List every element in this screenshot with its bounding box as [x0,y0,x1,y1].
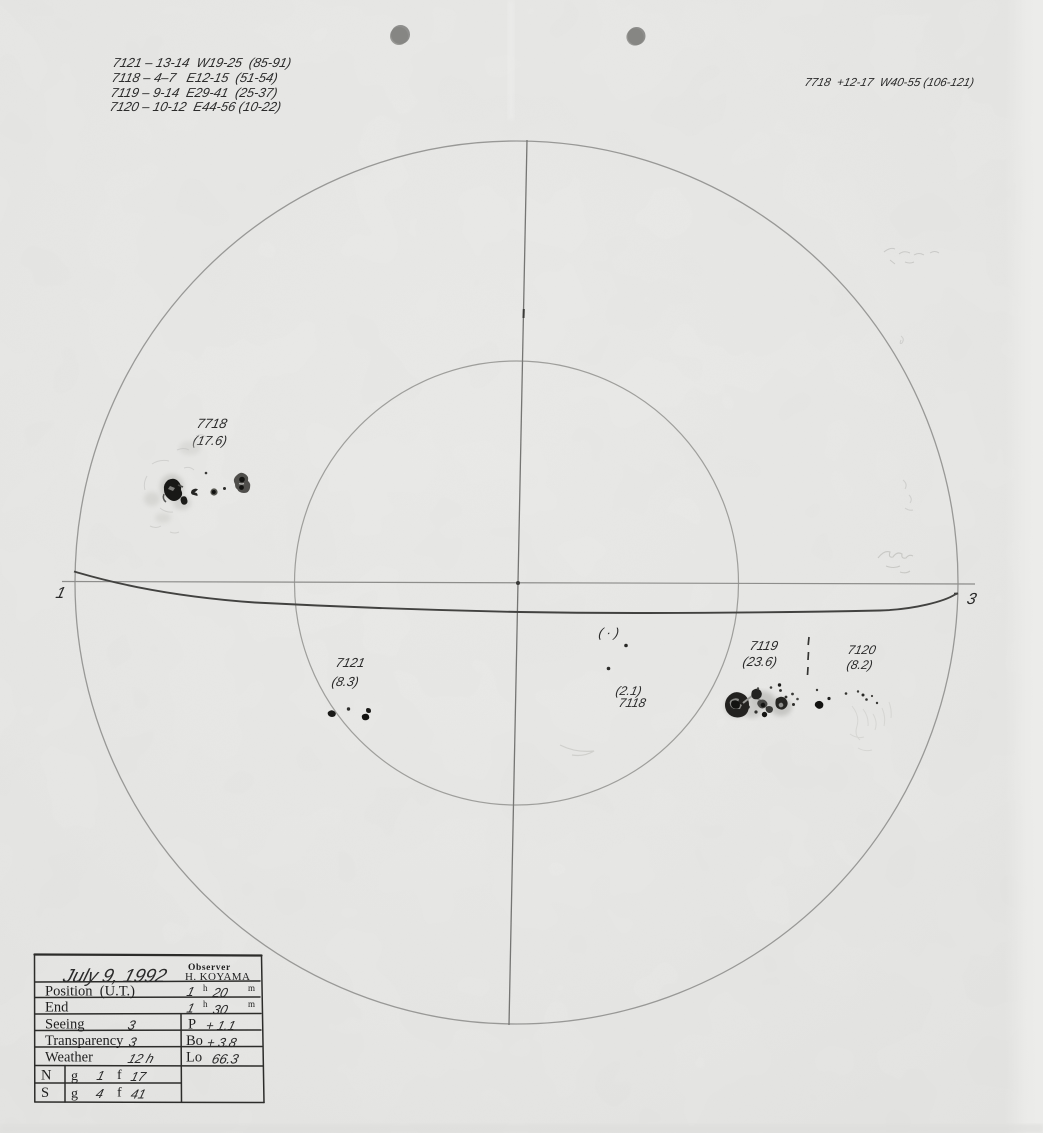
svg-text:7119 – 9-14 E29-41 (25-37): 7119 – 9-14 E29-41 (25-37) [109,85,279,100]
svg-text:g: g [71,1087,78,1102]
svg-text:7120: 7120 [846,643,877,657]
svg-text:m: m [248,983,255,993]
svg-text:g: g [71,1069,78,1084]
svg-text:h: h [203,999,208,1009]
svg-text:f: f [117,1068,122,1083]
svg-text:N: N [41,1068,52,1084]
svg-text:7118 – 4–7 E12-15 (51-54): 7118 – 4–7 E12-15 (51-54) [110,70,279,85]
svg-text:7118: 7118 [617,696,647,710]
svg-text:P: P [188,1017,196,1033]
svg-text:12 h: 12 h [126,1051,156,1066]
svg-text:Bo: Bo [186,1033,203,1049]
svg-text:Position (U.T.): Position (U.T.) [45,984,135,1000]
svg-text:7718: 7718 [195,416,229,431]
svg-text:Seeing: Seeing [45,1017,84,1033]
svg-text:Lo: Lo [186,1050,202,1066]
svg-text:7120 – 10-12 E44-56 (10-22): 7120 – 10-12 E44-56 (10-22) [108,99,282,114]
svg-text:Transparency: Transparency [45,1033,124,1049]
svg-text:(8.3): (8.3) [330,674,360,689]
svg-text:+ 1.1: + 1.1 [204,1018,237,1033]
svg-text:7718 +12-17 W40-55 (106-121): 7718 +12-17 W40-55 (106-121) [803,76,975,89]
svg-text:Weather: Weather [45,1050,93,1066]
svg-text:+ 3.8: + 3.8 [205,1035,239,1050]
svg-text:(8.2): (8.2) [845,658,874,672]
svg-text:( · ): ( · ) [597,625,620,640]
svg-text:(23.6): (23.6) [741,654,778,669]
svg-text:H. KOYAMA: H. KOYAMA [185,971,250,983]
svg-text:66.3: 66.3 [210,1052,240,1067]
svg-text:7119: 7119 [748,638,780,653]
svg-text:h: h [203,983,208,993]
svg-text:f: f [117,1086,122,1101]
svg-text:S: S [41,1085,49,1101]
svg-text:m: m [248,999,255,1009]
svg-text:End: End [45,1000,69,1016]
svg-text:7121 – 13-14 W19-25 (85-91): 7121 – 13-14 W19-25 (85-91) [111,55,292,70]
svg-text:7121: 7121 [334,655,366,670]
